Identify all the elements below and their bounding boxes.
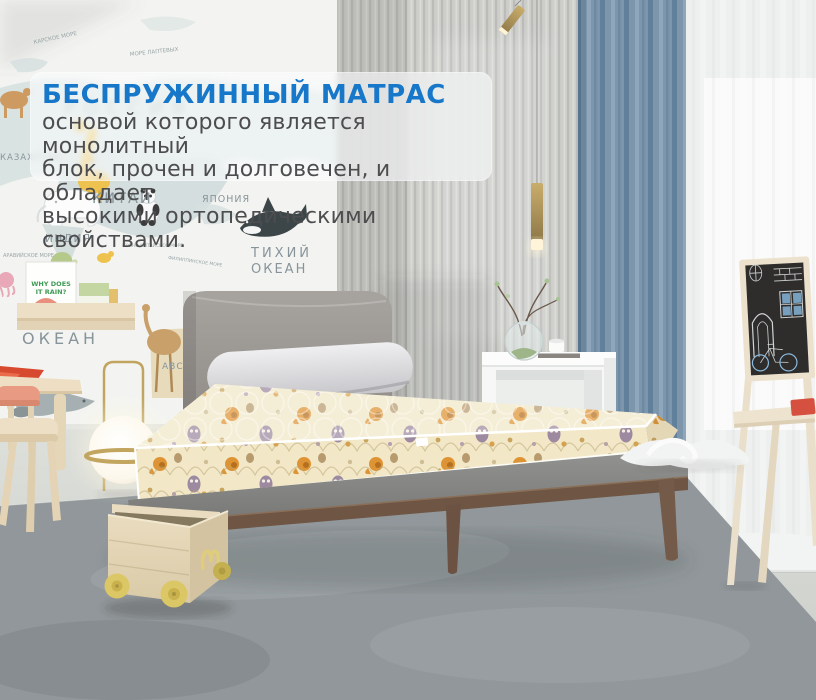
toy-cart	[104, 504, 232, 618]
map-label-arabian-sea: АРАВИЙСКОЕ МОРЕ	[3, 252, 54, 259]
book-title-line1: WHY DOES	[31, 280, 71, 288]
room-photo: РОССИЯ КАРСКОЕ МОРЕ МОРЕ ЛАПТЕВЫХ КАЗАХС…	[0, 0, 816, 700]
overlay-body: основой которого является монолитный бло…	[42, 111, 478, 252]
overlay-title: БЕСПРУЖИННЫЙ МАТРАС	[42, 80, 478, 110]
white-cup	[549, 339, 564, 352]
map-label-indian-ocean: ОКЕАН	[22, 329, 99, 348]
map-label-pacific-2: ОКЕАН	[251, 262, 307, 277]
paint-box-red	[790, 398, 815, 416]
chalkboard	[739, 256, 815, 381]
shelf-board	[17, 321, 135, 330]
info-overlay: БЕСПРУЖИННЫЙ МАТРАС основой которого явл…	[30, 72, 492, 181]
mattress-tag	[416, 437, 429, 446]
book-title-line2: IT RAIN?	[36, 288, 67, 296]
stacked-books	[536, 354, 582, 363]
